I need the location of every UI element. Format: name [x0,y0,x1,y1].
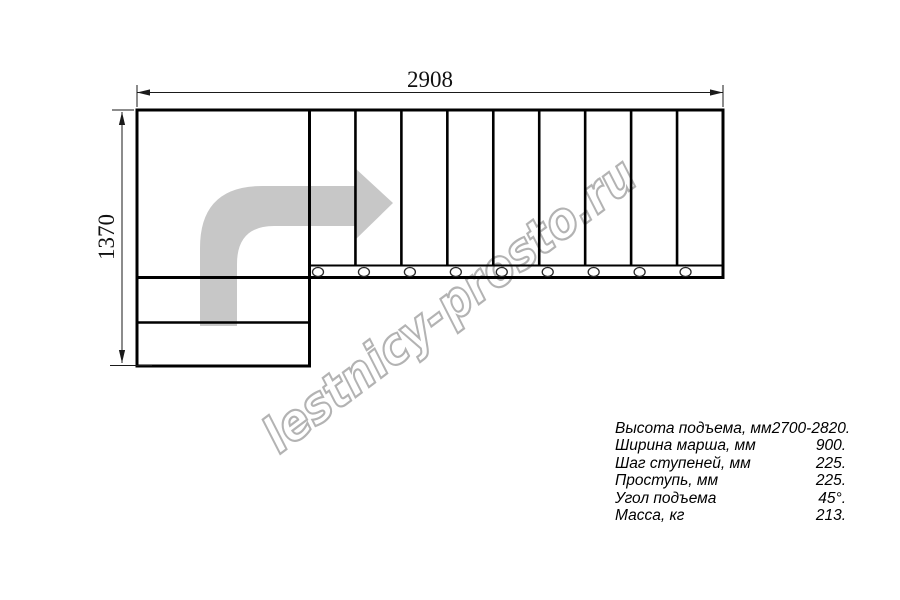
top-dimension-label: 2908 [407,67,453,92]
spec-value: 213. [816,507,846,524]
fastener-circle [680,268,691,277]
spec-value: 225. [816,455,846,472]
spec-value: 45°. [818,490,846,507]
spec-row: Масса, кг 213. [615,507,846,524]
spec-value: 900. [816,437,846,454]
spec-label: Масса, кг [615,507,684,524]
dimension-arrowhead [137,89,150,95]
fastener-circle [496,268,507,277]
spec-label: Шаг ступеней, мм [615,455,751,472]
dimension-arrowhead [710,89,723,95]
spec-row: Угол подъема 45°. [615,490,846,507]
spec-label: Проступь, мм [615,472,718,489]
fastener-circles [313,268,692,277]
dimension-arrowhead [119,112,125,125]
fastener-circle [358,268,369,277]
specs-table: Высота подъема, мм 2700-2820. Ширина мар… [615,420,846,524]
stair-drawing-page: lestnicy-prosto.ru [0,0,900,600]
fastener-circle [313,268,324,277]
fastener-circle [450,268,461,277]
fastener-circle [542,268,553,277]
fastener-circle [588,268,599,277]
fastener-circle [634,268,645,277]
left-dimension-label: 1370 [94,214,119,260]
spec-row: Проступь, мм 225. [615,472,846,489]
spec-value: 2700-2820. [772,420,850,437]
fastener-circle [404,268,415,277]
direction-arrow [200,168,393,326]
spec-row: Шаг ступеней, мм 225. [615,455,846,472]
spec-value: 225. [816,472,846,489]
spec-label: Высота подъема, мм [615,420,772,437]
spec-label: Ширина марша, мм [615,437,756,454]
spec-label: Угол подъема [615,490,716,507]
spec-row: Высота подъема, мм 2700-2820. [615,420,846,437]
spec-row: Ширина марша, мм 900. [615,437,846,454]
dimension-arrowhead [119,350,125,363]
